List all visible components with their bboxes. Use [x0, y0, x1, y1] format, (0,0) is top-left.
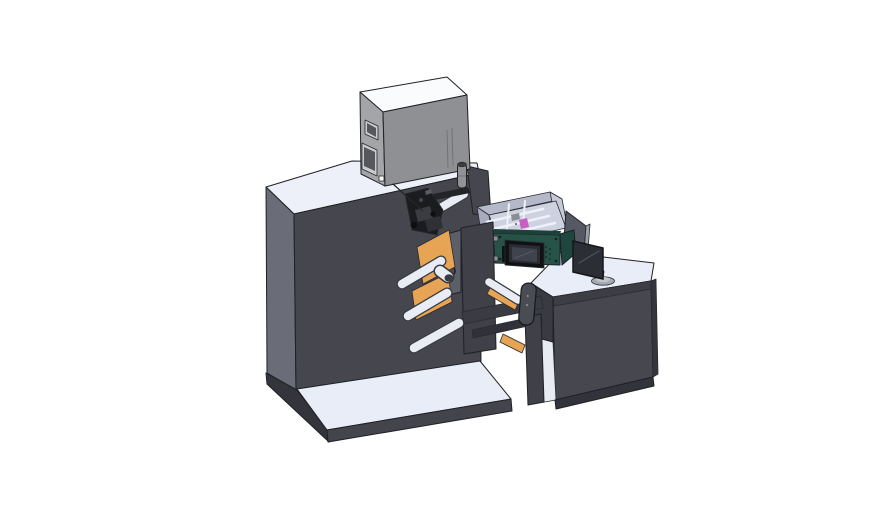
monitor-screen: [573, 241, 603, 279]
roller-stub-cap: [445, 274, 454, 282]
cabinet-left-face: [266, 187, 296, 390]
exhaust-cylinder: [458, 162, 467, 188]
print-head-knob: [411, 222, 417, 228]
handle-widget: [518, 282, 537, 325]
hopper-dark-dot: [515, 223, 517, 225]
cad-render-page: [0, 0, 888, 522]
control-button: [549, 258, 551, 260]
control-button: [549, 253, 551, 255]
control-button: [545, 256, 547, 258]
control-screw: [555, 260, 558, 263]
cylinder-cap: [458, 162, 467, 166]
control-screw: [555, 238, 558, 241]
control-button: [545, 246, 547, 248]
control-panel: [493, 229, 576, 268]
electronics-box: [360, 77, 470, 186]
control-screw: [499, 236, 502, 239]
desk-leg: [525, 314, 544, 405]
box-corner-plate: [379, 176, 384, 181]
handle-body: [518, 282, 537, 325]
label-web-right-lower: [500, 334, 525, 353]
control-button: [549, 248, 551, 250]
print-head-pin: [419, 198, 423, 202]
machine-render: [0, 0, 888, 522]
print-head-knob: [430, 211, 435, 216]
control-screw: [499, 258, 502, 261]
control-button: [545, 251, 547, 253]
